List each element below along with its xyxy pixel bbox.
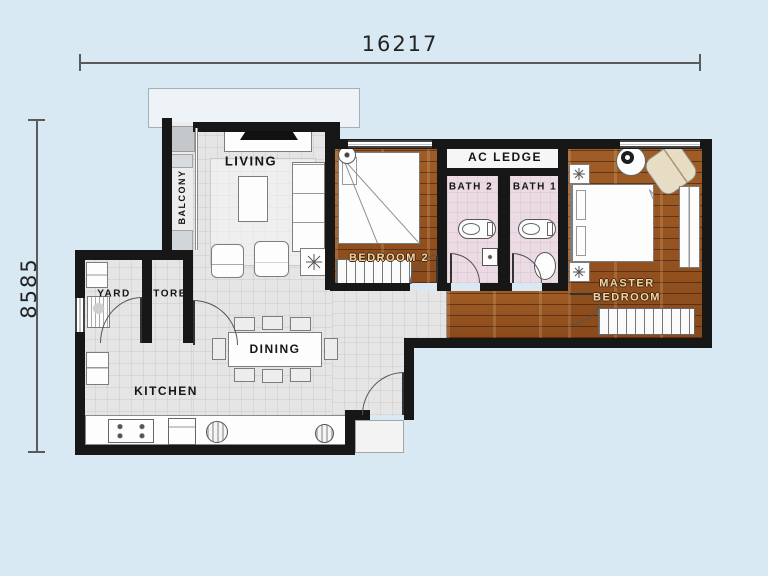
floor-plan: 16217 8585: [0, 0, 768, 576]
blanket-fold-line: [343, 159, 419, 243]
dining-chair: [290, 368, 311, 382]
fridge-icon: [86, 352, 109, 385]
wall-corridor-top-c: [542, 283, 568, 291]
toilet-bowl: [522, 223, 540, 235]
corridor-floor: [447, 291, 568, 338]
dining-chair: [324, 338, 338, 360]
wall-living-bedroom2: [325, 128, 335, 290]
wall-bottom-master: [404, 338, 712, 348]
blanket-fold-line: [343, 159, 381, 244]
plant-icon: [305, 253, 323, 271]
dining-chair: [262, 369, 283, 383]
yard-shelf: [86, 262, 108, 288]
left-dimension-tick-top: [28, 119, 45, 121]
yard-label: YARD: [97, 289, 130, 300]
yard-window: [75, 298, 85, 332]
pillow: [576, 190, 586, 220]
dining-chair: [262, 316, 283, 330]
entry-landing: [355, 420, 404, 453]
coffee-table: [238, 176, 268, 222]
dining-chair: [234, 368, 255, 382]
hallway-floor: [332, 290, 447, 338]
kitchen-label: KITCHEN: [134, 384, 198, 398]
wall-bath1-master: [558, 139, 568, 291]
master-window: [620, 140, 700, 148]
store-label: STORE: [145, 289, 187, 300]
balcony-label: BALCONY: [177, 170, 187, 225]
bed: [338, 152, 420, 244]
wardrobe-master: [598, 308, 695, 335]
lamp-icon: [573, 266, 585, 278]
kitchen-sink-unit: [168, 418, 196, 445]
top-dimension-tick-right: [699, 54, 701, 71]
master-bedroom-label: MASTER BEDROOM: [581, 277, 673, 305]
wall-bath-divider: [498, 176, 510, 283]
bath2-label: BATH 2: [449, 182, 493, 193]
toilet-icon: [458, 219, 496, 239]
armchair: [254, 241, 289, 277]
left-dimension-label: 8585: [17, 240, 41, 336]
wall-entry-side: [404, 338, 414, 420]
toilet-tank: [547, 222, 553, 236]
balcony-living-divider: [195, 128, 198, 250]
bed-master: [570, 184, 654, 262]
round-sink-icon: [206, 421, 228, 443]
bath1-label: BATH 1: [513, 182, 557, 193]
wall-bedroom2-bottom-left: [330, 283, 410, 291]
round-sink-icon: [315, 424, 334, 443]
left-dimension-tick-bottom: [28, 451, 45, 453]
armchair: [211, 244, 244, 278]
dining-chair: [234, 317, 255, 331]
toilet-bowl: [462, 223, 480, 235]
stool-center: [621, 151, 634, 164]
wall-yard-top: [75, 250, 193, 260]
dining-label: DINING: [250, 342, 301, 356]
toilet-icon: [518, 219, 556, 239]
bedroom2-label: BEDROOM 2: [349, 252, 429, 264]
dining-chair: [290, 317, 311, 331]
toilet-tank: [487, 222, 493, 236]
living-label: LIVING: [225, 154, 277, 169]
balcony-unit-panel: [169, 126, 195, 152]
wall-bedroom2-bath2: [437, 149, 447, 291]
sofa: [292, 162, 325, 252]
wall-top-living: [193, 122, 340, 132]
wall-balcony-left: [162, 118, 172, 258]
stove-icon: [108, 419, 154, 443]
wall-right: [702, 139, 712, 348]
top-dimension-tick-left: [79, 54, 81, 71]
ac-ledge-label: AC LEDGE: [468, 150, 542, 164]
blanket-fold-line: [649, 189, 654, 262]
wall-left: [75, 250, 85, 455]
top-dimension-line: [80, 62, 700, 64]
tv-icon: [240, 131, 298, 140]
dresser: [679, 186, 700, 268]
wall-bottom-kitchen: [75, 445, 355, 455]
nightstand: [569, 164, 590, 184]
wall-corridor-top-b: [480, 283, 512, 291]
shower-tray: [482, 248, 498, 266]
bedroom2-window: [348, 140, 432, 148]
balcony-shelf: [169, 154, 193, 168]
blanket-fold-line: [649, 190, 654, 262]
lamp-icon: [573, 168, 585, 180]
floor-transition-line: [446, 291, 447, 338]
stool-icon: [616, 146, 646, 176]
wall-bath-top: [447, 168, 568, 176]
pillow: [576, 226, 586, 256]
top-dimension-label: 16217: [335, 32, 465, 56]
wall-corridor-top-a: [447, 283, 451, 291]
